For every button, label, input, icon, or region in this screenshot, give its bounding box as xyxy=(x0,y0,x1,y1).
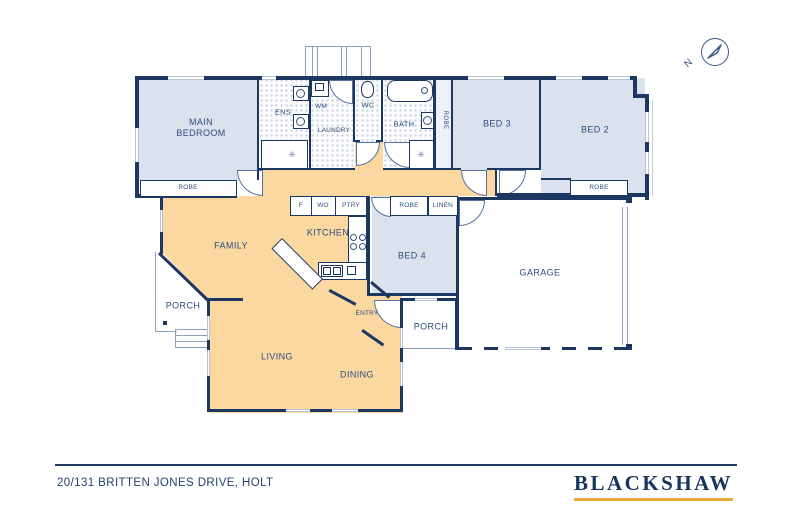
wall-wc-bath xyxy=(381,78,383,142)
label-bed4: BED 4 xyxy=(398,250,426,261)
garage-corner-a xyxy=(626,197,632,203)
label-ens: ENS xyxy=(275,107,291,116)
label-robe-vertical: ROBE xyxy=(440,110,448,129)
floor-plan: ✳ ✳ MAIN BEDROOM ENS LAUNDRY WC BATH BED… xyxy=(0,0,790,527)
label-laundry: LAUNDRY xyxy=(318,127,350,135)
eave-line-right xyxy=(652,100,653,196)
wall-laundry-wc xyxy=(353,78,355,142)
porch-step xyxy=(175,347,209,348)
label-wm: WM xyxy=(315,103,327,111)
stove-burner xyxy=(359,234,366,241)
label-kitchen: KITCHEN xyxy=(307,227,349,238)
label-family: FAMILY xyxy=(214,240,248,251)
stove-burner xyxy=(359,243,366,250)
window-bed2-top-b xyxy=(608,76,630,80)
window-living-bottom-a xyxy=(286,409,310,412)
door-arc-garage xyxy=(459,200,485,226)
wall-living-top xyxy=(207,298,243,301)
wall-kitchen-bed4 xyxy=(367,196,370,296)
compass-needle-icon xyxy=(702,39,727,64)
window-living-bottom-b xyxy=(332,409,358,412)
window-bed2-right-a xyxy=(645,112,649,142)
window-main-left xyxy=(135,128,139,162)
wall-bed3-bottom-a xyxy=(453,168,461,170)
wall-right-bed2 xyxy=(645,94,649,200)
stove-burner xyxy=(350,243,357,250)
ens-basin-a-bowl xyxy=(296,89,305,98)
label-porch-left: PORCH xyxy=(166,300,201,311)
window-living-left-a xyxy=(207,316,210,340)
deck-step-line xyxy=(346,46,347,78)
window-porch-right-top xyxy=(415,298,437,301)
blackshaw-logo: BLACKSHAW xyxy=(574,471,733,501)
wall-wc-stub-b xyxy=(376,140,383,142)
label-entry: ENTRY xyxy=(356,310,379,318)
kitchen-sink-bowl-b xyxy=(333,267,341,275)
label-wall-oven: WO xyxy=(317,202,329,210)
wall-hall-end xyxy=(495,170,497,196)
label-main-bedroom: MAIN BEDROOM xyxy=(165,117,237,140)
window-bed2-right-b xyxy=(645,152,649,174)
wall-garage-bottom-dashed xyxy=(458,347,630,350)
label-robe-bed2: ROBE xyxy=(589,184,608,192)
footer-divider xyxy=(55,464,737,466)
label-robe-main: ROBE xyxy=(178,184,197,192)
window-bed2-top-a xyxy=(556,76,582,80)
garage-door-line-b xyxy=(627,207,628,345)
ens-shower xyxy=(261,140,308,169)
deck-step-line xyxy=(341,46,342,78)
kitchen-hob-box xyxy=(347,266,356,275)
kitchen-sink-bowl-a xyxy=(323,267,331,275)
label-dining: DINING xyxy=(340,369,374,380)
window-ens-top xyxy=(262,76,276,80)
compass-icon xyxy=(701,38,729,66)
compass-north-label: N xyxy=(682,57,695,70)
garage-corner-b xyxy=(626,344,632,350)
porch-step xyxy=(175,341,209,342)
wall-robe-bed3 xyxy=(451,78,453,170)
window-bed3-top xyxy=(468,76,504,80)
deck-step-line xyxy=(312,46,313,78)
label-garage: GARAGE xyxy=(520,267,561,278)
label-bed3: BED 3 xyxy=(483,118,511,129)
label-linen: LINEN xyxy=(433,202,453,210)
shower-icon: ✳ xyxy=(417,150,425,161)
window-dining-right-b xyxy=(400,362,403,386)
porch-step-edge-a xyxy=(175,329,176,348)
window-dining-right-a xyxy=(400,328,403,348)
wall-dining-right xyxy=(400,298,403,412)
stove-burner xyxy=(350,234,357,241)
wc-toilet xyxy=(361,81,374,98)
bathtub-drain xyxy=(421,87,428,94)
label-pantry: PTRY xyxy=(342,202,360,210)
wall-bed3-bottom-b xyxy=(487,168,541,170)
garage-bottom-light-seg xyxy=(505,347,541,350)
shower-icon: ✳ xyxy=(288,150,296,161)
wall-wc-stub-a xyxy=(353,140,360,142)
wall-main-ens xyxy=(257,78,259,180)
label-fridge: F xyxy=(299,202,303,210)
wall-garage-left xyxy=(456,197,459,350)
bath-vanity-bowl xyxy=(423,116,432,125)
label-robe-bed4: ROBE xyxy=(399,202,418,210)
porch-left-edge xyxy=(155,252,156,332)
deck-step-line xyxy=(317,46,318,78)
label-living: LIVING xyxy=(261,351,293,362)
wall-bed2-bottom-a xyxy=(541,178,571,180)
label-porch-right: PORCH xyxy=(414,321,449,332)
label-wc: WC xyxy=(361,100,374,109)
ens-basin-b-bowl xyxy=(296,117,305,126)
garage-door-line-a xyxy=(622,207,623,345)
window-family-left xyxy=(160,210,163,232)
label-bed2: BED 2 xyxy=(581,124,609,135)
door-arc-main-bedroom xyxy=(237,170,263,196)
deck-step-line xyxy=(361,46,362,78)
window-main-top xyxy=(168,76,204,80)
wall-garage-top xyxy=(456,197,632,200)
porch-right-bottom-line xyxy=(403,348,456,349)
porch-step xyxy=(175,335,209,336)
window-living-left-b xyxy=(207,350,210,376)
porch-step xyxy=(175,329,209,330)
wall-bed3-bed2 xyxy=(539,78,541,170)
label-bath: BATH xyxy=(394,119,415,128)
property-address: 20/131 BRITTEN JONES DRIVE, HOLT xyxy=(57,477,273,489)
porch-post xyxy=(163,321,167,325)
washing-machine-inner xyxy=(315,83,324,91)
porch-left-bottom xyxy=(155,331,177,332)
